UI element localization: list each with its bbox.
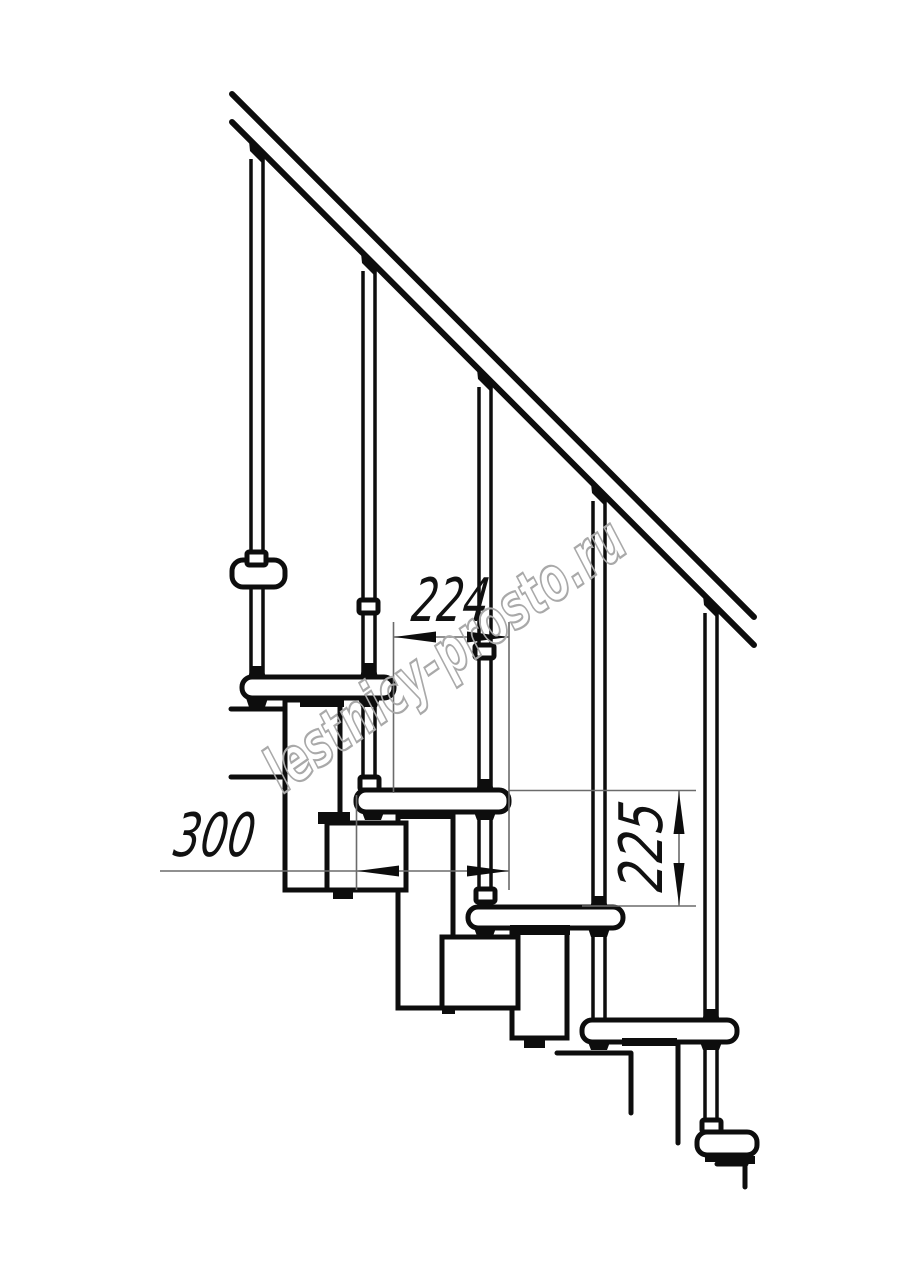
- watermark-text: lestnicy-prosto.ru: [250, 503, 640, 807]
- tab-module-2-bottom: [442, 1007, 455, 1014]
- baluster-1: [251, 159, 263, 677]
- coupler-baluster-1: [247, 552, 266, 565]
- nut-baluster-1: [246, 698, 268, 707]
- nut-baluster-5-tread-4: [700, 1042, 722, 1050]
- plate-under-tread-4: [622, 1038, 677, 1046]
- lower-structure-partial: [717, 1164, 746, 1187]
- plate-under-tread-3: [510, 925, 570, 935]
- tab-under-tread-5: [730, 1156, 755, 1164]
- coupler-baluster-2-bottom: [360, 777, 379, 790]
- dim-300-label: 300: [170, 801, 260, 871]
- module-square-1: [327, 823, 406, 890]
- nut-baluster-3-tread-2: [474, 812, 496, 820]
- technical-drawing: 224 300 225 lestnicy-prosto.ru: [0, 0, 914, 1280]
- nut-baluster-4-tread-4: [588, 1042, 610, 1050]
- staircase-drawing-canvas: 224 300 225 lestnicy-prosto.ru: [0, 0, 914, 1280]
- tab-module-3-bottom: [524, 1038, 545, 1048]
- dim-225-label: 225: [607, 797, 677, 895]
- baluster-5: [705, 613, 717, 1132]
- nut-baluster-4-tread-3: [588, 928, 610, 937]
- plate-under-tread-2: [400, 812, 453, 819]
- nut-baluster-3-tread-3: [474, 928, 496, 936]
- module-square-2: [442, 937, 518, 1008]
- dim-300-arrow-right: [467, 866, 509, 877]
- module-square-3-partial: [557, 1053, 631, 1113]
- coupler-baluster-5-bottom: [702, 1120, 721, 1132]
- nut-baluster-2-tread-2: [362, 812, 384, 820]
- handrail: [232, 94, 754, 645]
- coupler-baluster-3-bottom: [476, 889, 495, 902]
- tread-3: [468, 907, 623, 928]
- tread-5-partial: [697, 1132, 757, 1155]
- dimension-225: 225: [509, 791, 696, 907]
- tab-module-1: [318, 812, 350, 824]
- tab-module-1-bottom: [333, 890, 353, 899]
- tread-2: [356, 790, 509, 812]
- coupler-baluster-2: [359, 600, 378, 613]
- handrail-top-line: [232, 94, 754, 617]
